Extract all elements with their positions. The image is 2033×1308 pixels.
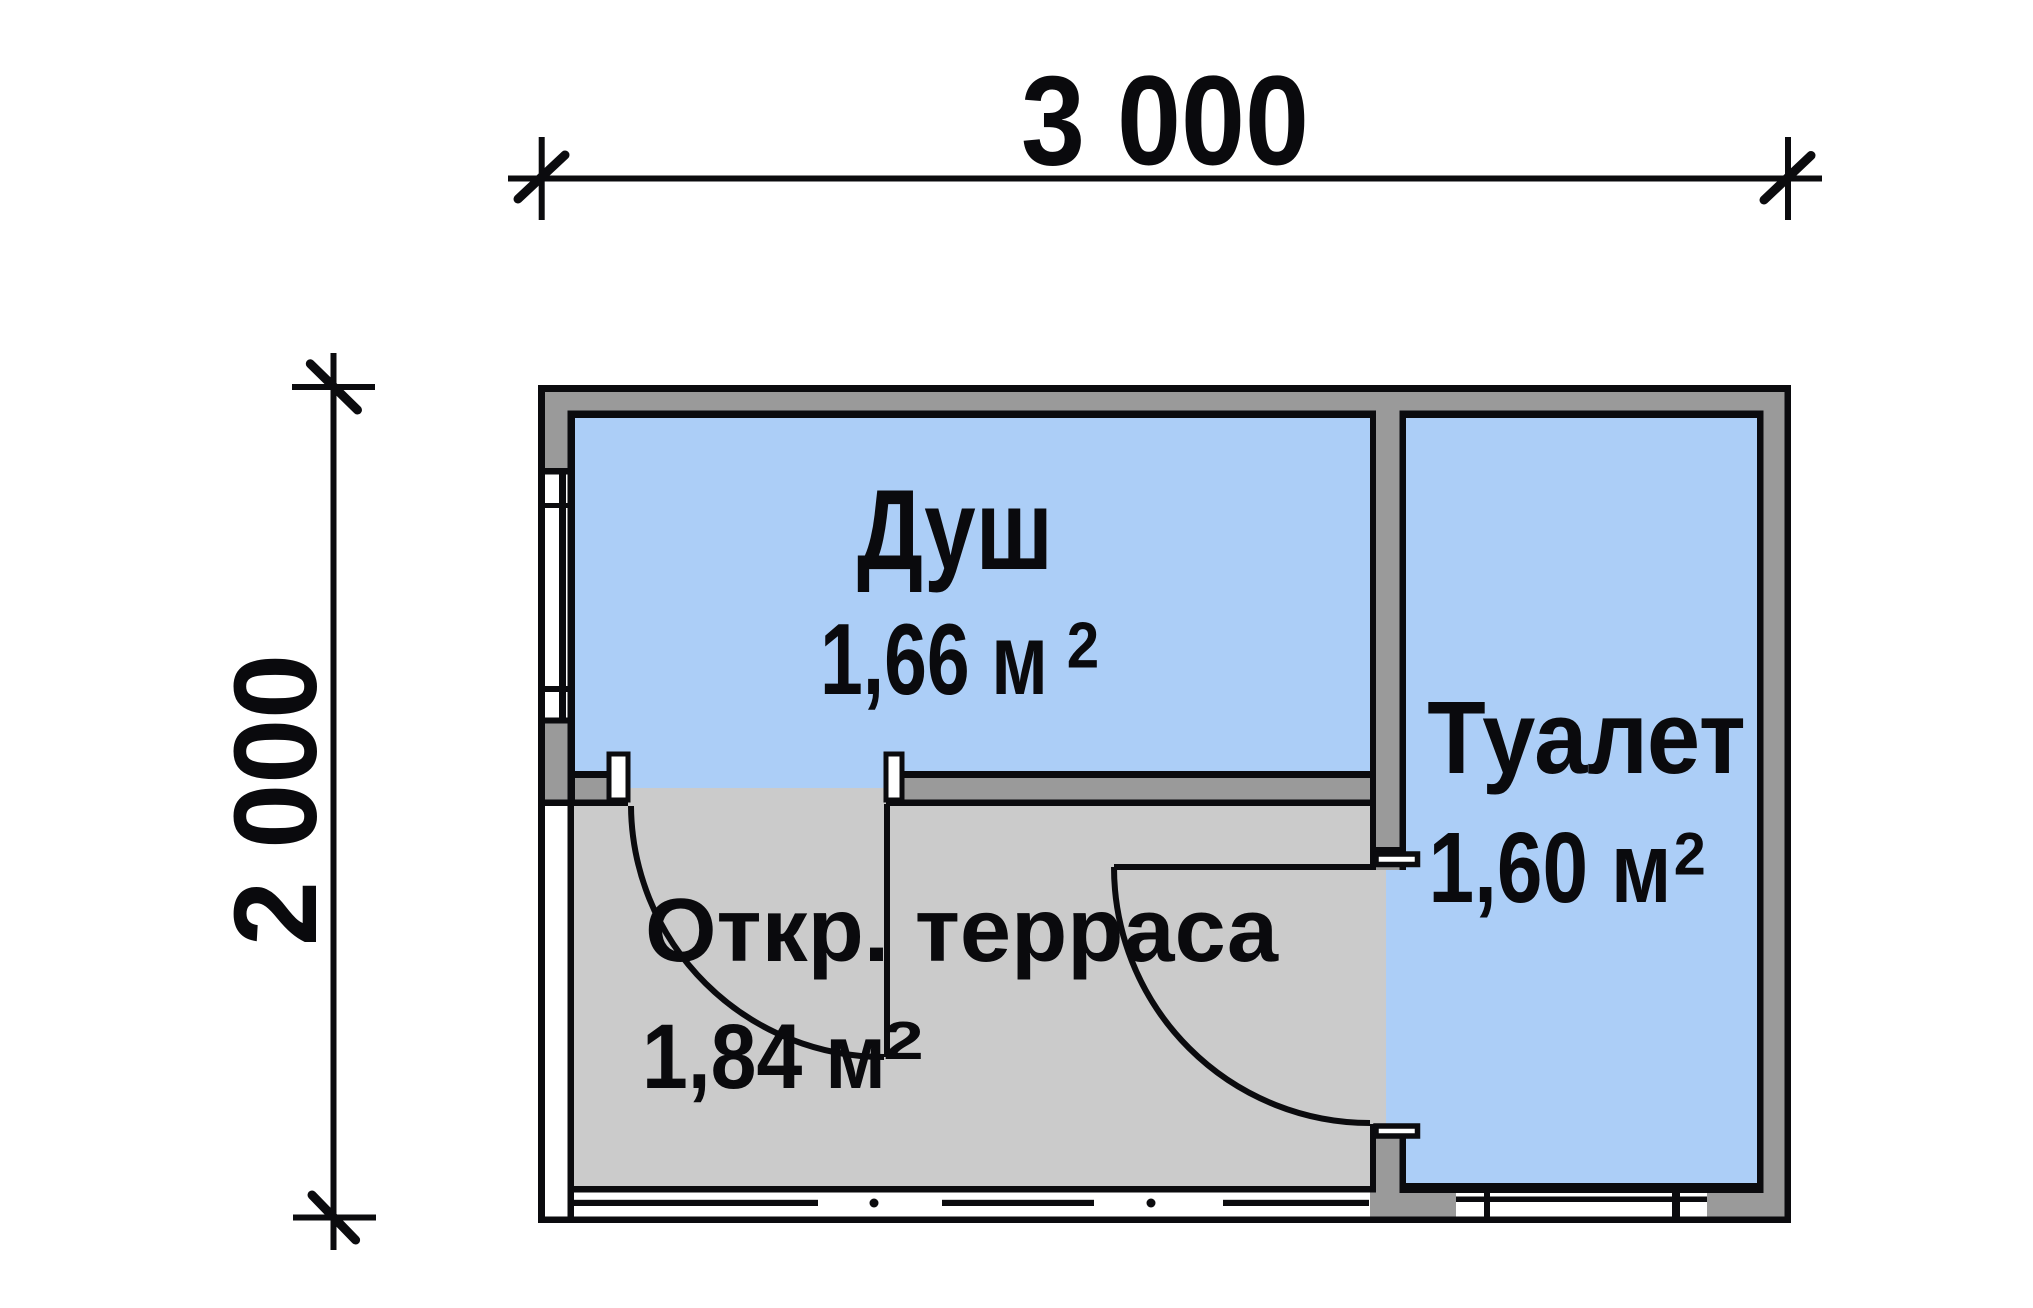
svg-text:1,60 м: 1,60 м — [1429, 812, 1672, 924]
svg-text:Душ: Душ — [857, 467, 1053, 594]
svg-text:Откр. терраса: Откр. терраса — [645, 881, 1279, 981]
svg-text:Туалет: Туалет — [1427, 680, 1745, 795]
svg-text:2: 2 — [883, 1011, 924, 1071]
svg-text:2: 2 — [1067, 609, 1099, 682]
svg-text:1,84 м: 1,84 м — [642, 1006, 886, 1108]
svg-text:2 000: 2 000 — [210, 654, 342, 946]
svg-text:3 000: 3 000 — [1021, 49, 1309, 191]
svg-text:1,66 м: 1,66 м — [820, 604, 1048, 716]
svg-text:2: 2 — [1674, 821, 1706, 888]
